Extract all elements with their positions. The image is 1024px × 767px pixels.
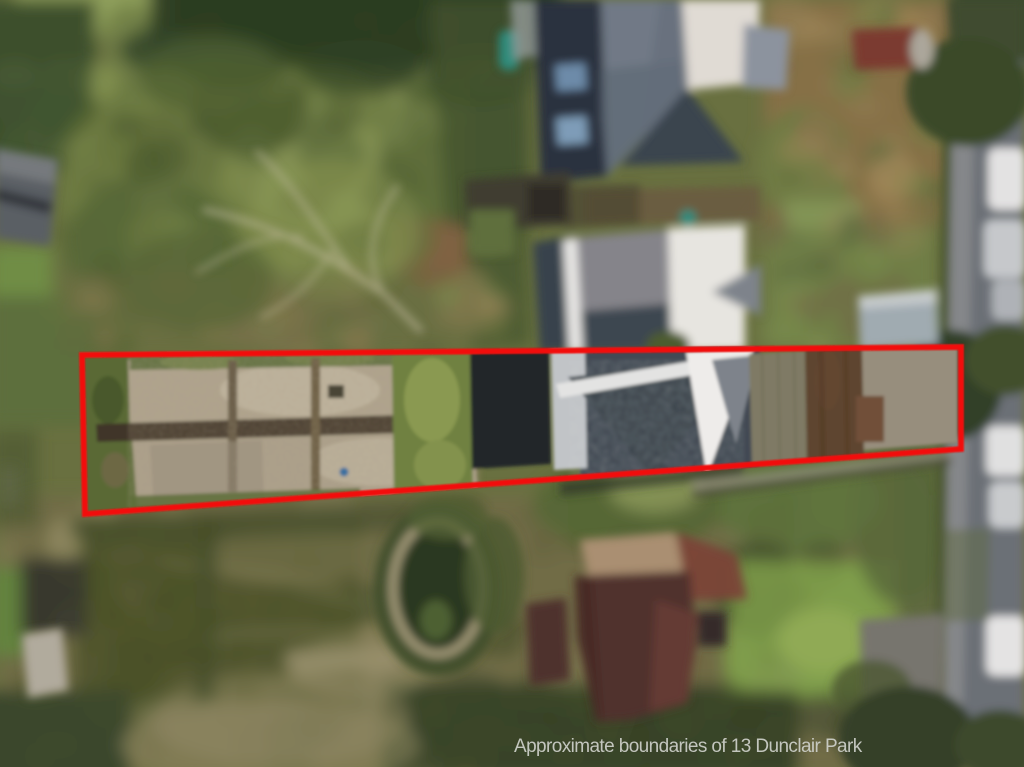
svg-text:Approximate boundaries of 13 D: Approximate boundaries of 13 Dunclair Pa… — [514, 736, 863, 757]
